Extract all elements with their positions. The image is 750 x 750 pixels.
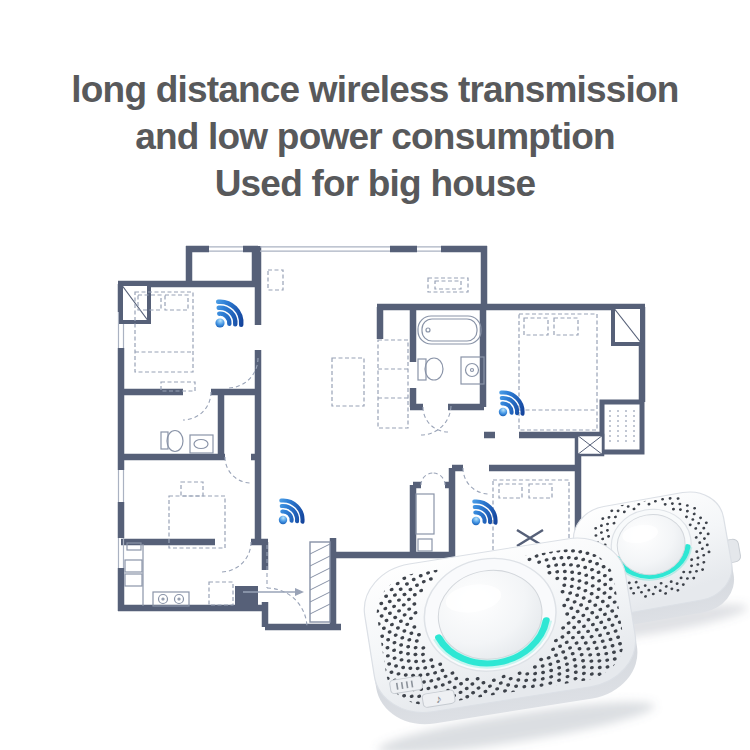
headline-line-3: Used for big house [0,160,750,207]
doorbell-receiver: ♪ [330,454,671,750]
headline-line-1: long distance wireless transmission [0,66,750,113]
wifi-icon [269,496,307,534]
product-banner: long distance wireless transmission and … [0,0,750,750]
wifi-icon [489,388,527,426]
burner [159,595,168,604]
doorbell-devices: ♪ [330,440,750,750]
dining-table [332,358,364,406]
wifi-icon [205,296,246,337]
headline-line-2: and low power consumption [0,113,750,160]
kitchen-sink [125,560,142,572]
burner [175,595,184,604]
bed-master [519,314,597,430]
structural-column [235,586,258,606]
balcony-chair [268,270,283,290]
sofa [378,340,408,428]
fridge [209,582,233,605]
console-table [428,278,468,292]
toilet2-bowl [425,358,443,380]
toilet-bowl [167,431,183,452]
headline: long distance wireless transmission and … [0,66,750,207]
